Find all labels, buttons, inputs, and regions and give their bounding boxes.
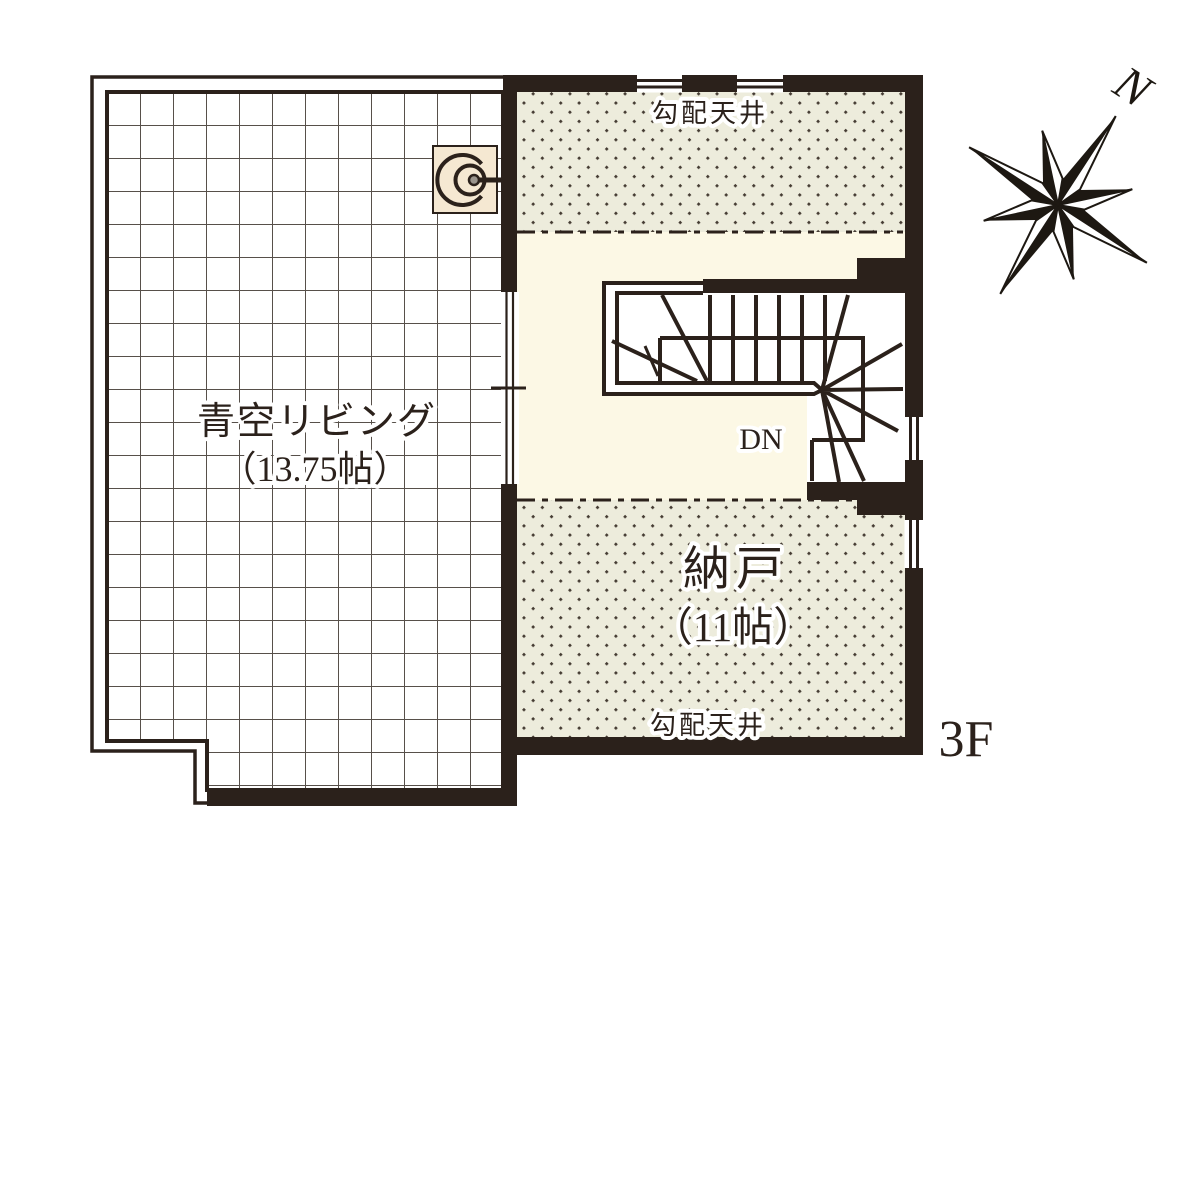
storage-room-label: 納戸 [683, 544, 789, 596]
storage-size-label: （11帖） [652, 604, 814, 650]
window-right-stair [905, 417, 924, 460]
stair-down-label: DN [739, 423, 782, 456]
sloped-ceiling-label-top: 勾配天井 [652, 99, 768, 128]
floor-plan-canvas: 青空リビング （13.75帖） 勾配天井 勾配天井 納戸 （11帖） DN 3F [0, 0, 1200, 1200]
window-right-storage [905, 520, 924, 568]
floor-label: 3F [939, 711, 994, 768]
sloped-ceiling-label-bottom: 勾配天井 [650, 711, 766, 740]
balcony-size-label: （13.75帖） [220, 449, 409, 489]
window-top-2 [737, 75, 783, 93]
water-tap-icon [433, 146, 504, 213]
floor-plan-3f: 青空リビング （13.75帖） 勾配天井 勾配天井 納戸 （11帖） DN 3F [0, 0, 1200, 1200]
balcony-room-label: 青空リビング [197, 401, 437, 443]
window-top-1 [637, 75, 682, 93]
